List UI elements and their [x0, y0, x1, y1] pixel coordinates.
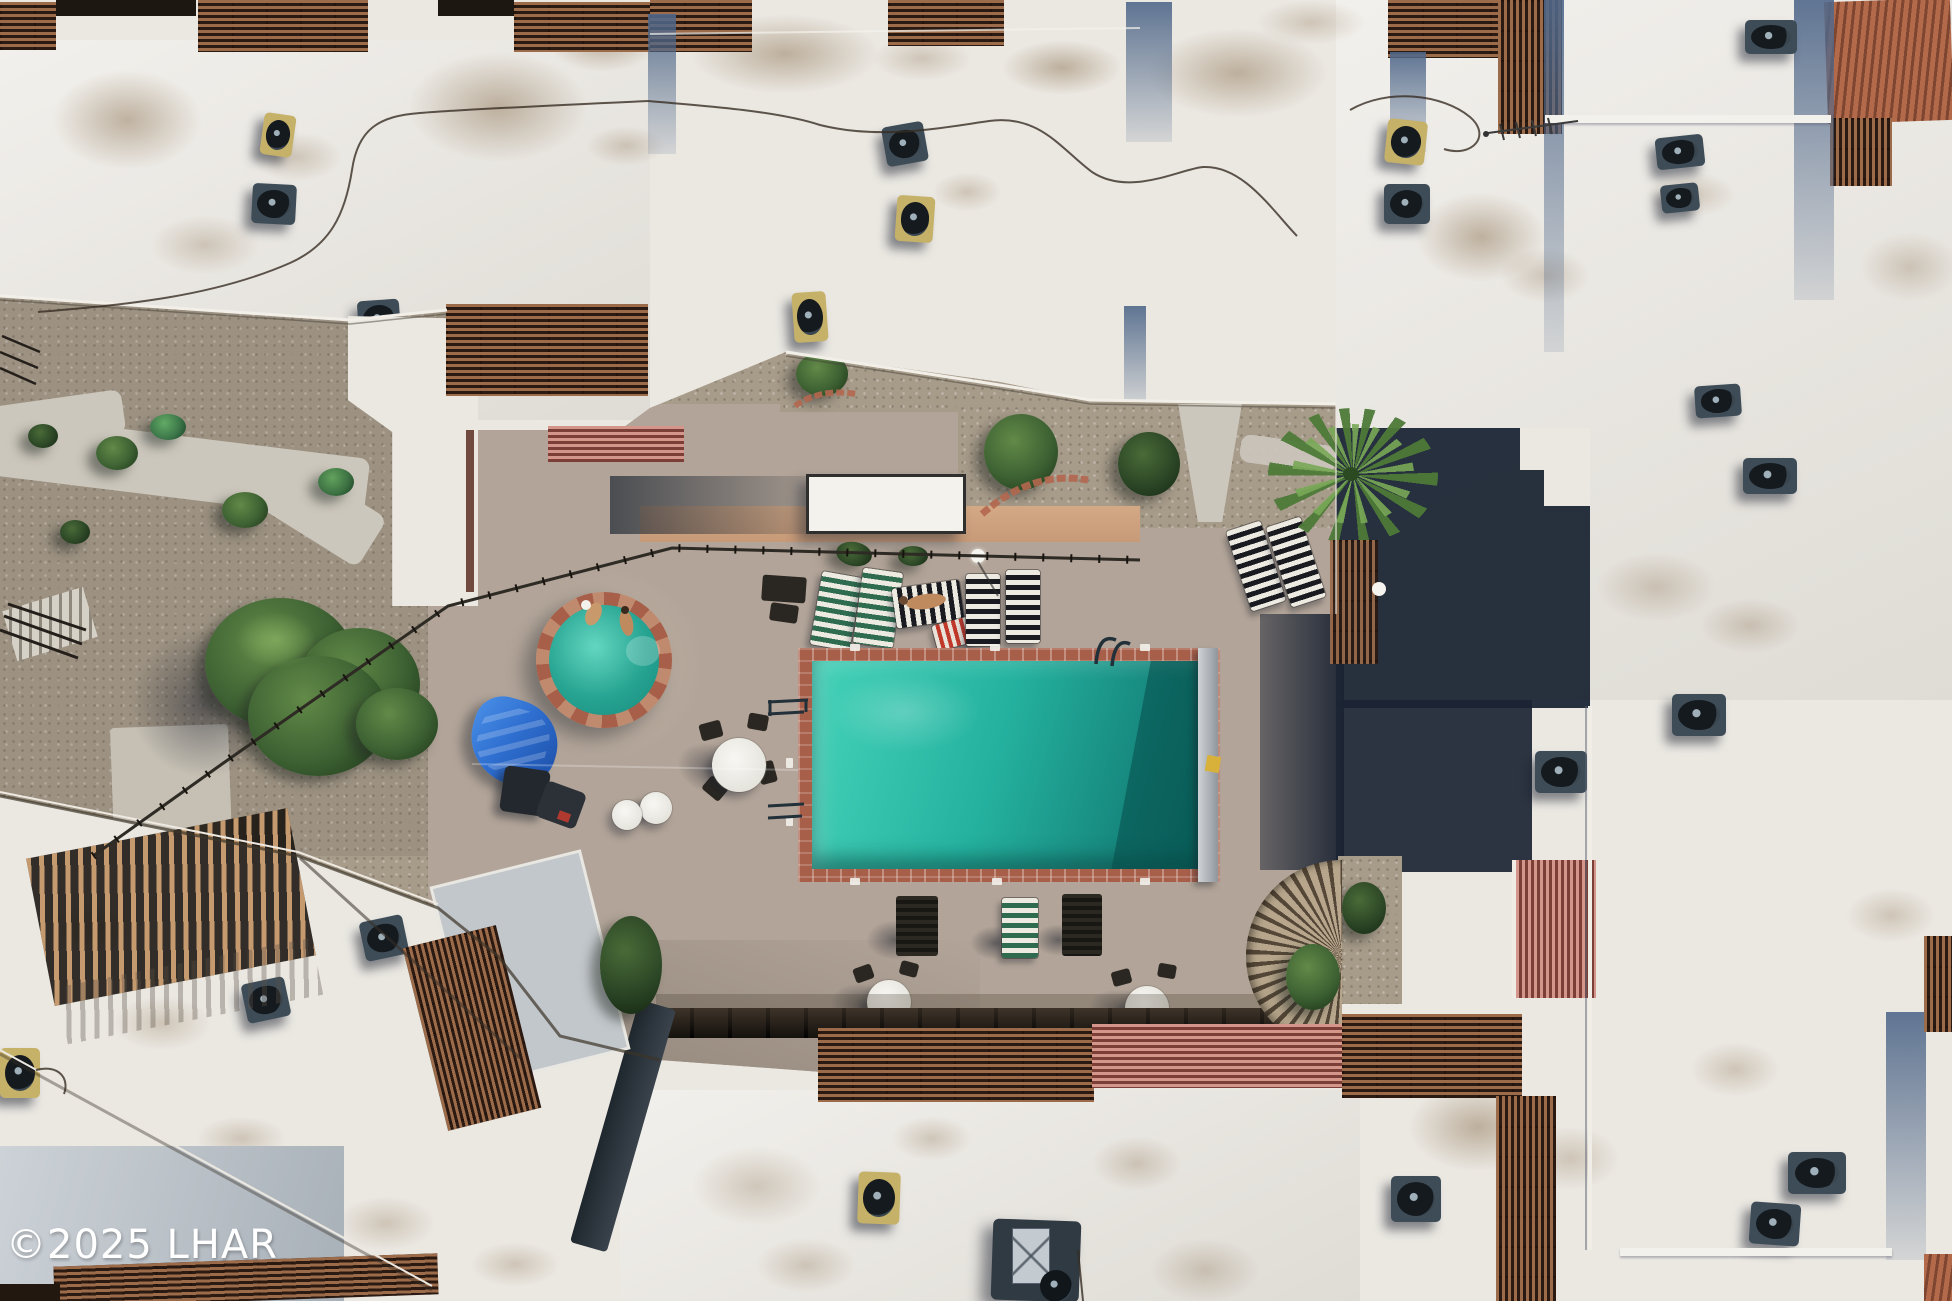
ac-unit	[791, 291, 828, 343]
pergola	[1092, 1024, 1354, 1088]
deck-marker	[850, 878, 860, 885]
lattice-pergola	[1830, 118, 1892, 186]
bush	[96, 436, 138, 470]
patio-chair	[1157, 963, 1177, 980]
pergola	[1388, 0, 1502, 58]
ac-unit	[881, 121, 929, 168]
roof-gap-shadow	[56, 0, 196, 16]
building-gap-shadow	[648, 14, 676, 154]
bush	[222, 492, 268, 528]
patio-chair	[747, 712, 769, 731]
fan-icon	[1661, 139, 1700, 166]
tree	[356, 688, 438, 760]
pergola	[548, 426, 684, 462]
person-head	[899, 596, 908, 605]
roof-stain	[408, 52, 588, 162]
tile-roof	[1924, 1254, 1952, 1301]
roof-stain	[336, 1196, 436, 1251]
shade-structure	[806, 474, 966, 534]
tree-highlight	[236, 612, 316, 668]
fan-icon	[1795, 1158, 1839, 1188]
bush	[1342, 882, 1386, 934]
roof-stain	[1150, 1238, 1260, 1301]
yellow-tag	[1205, 755, 1222, 773]
roof-stain	[1092, 1136, 1182, 1191]
fan-icon	[257, 189, 292, 220]
sun-hat	[581, 600, 591, 610]
pergola	[1496, 1096, 1556, 1301]
pergola	[818, 1028, 1094, 1102]
building-gap-shadow	[1794, 0, 1834, 300]
umbrella	[640, 792, 672, 824]
fan-icon	[1751, 25, 1791, 50]
roof-stain	[1002, 40, 1122, 95]
pergola	[446, 304, 648, 396]
roof-notch	[1544, 470, 1590, 506]
fan-icon	[1678, 700, 1719, 730]
ac-unit	[1384, 184, 1430, 224]
fan-icon	[1397, 1182, 1435, 1215]
pergola	[198, 0, 368, 52]
building-gap-shadow	[1544, 0, 1564, 352]
bush	[796, 352, 848, 396]
bench	[761, 574, 807, 603]
fan-icon	[796, 298, 824, 336]
roof-edge-band	[466, 430, 474, 592]
aerial-photo: ©2025 LHAR	[0, 0, 1952, 1301]
ac-unit	[1391, 1176, 1441, 1222]
bench	[769, 602, 799, 624]
ac-unit	[358, 914, 409, 962]
patio-table	[712, 738, 766, 792]
pergola	[1512, 860, 1596, 998]
ac-unit	[1660, 182, 1701, 214]
fan-icon	[1541, 757, 1581, 787]
ac-unit	[1535, 751, 1587, 793]
bush	[1286, 944, 1340, 1010]
ac-unit	[1745, 20, 1797, 54]
pergola	[514, 2, 650, 52]
sun-lounger	[1002, 898, 1038, 958]
bush	[1118, 432, 1180, 496]
ac-unit	[1672, 694, 1726, 736]
bush	[318, 468, 354, 496]
sun-lounger	[1006, 570, 1040, 643]
deck-marker	[990, 644, 1000, 651]
spa-steps	[626, 636, 660, 666]
deck-marker	[850, 644, 860, 651]
deck-marker	[1140, 644, 1150, 651]
roof-stain	[1700, 598, 1800, 653]
roof-stain	[692, 1146, 822, 1226]
pergola	[0, 2, 56, 50]
roof-stain	[1256, 0, 1366, 45]
roof-stain	[1690, 1042, 1780, 1097]
ac-unit	[1654, 134, 1705, 171]
pool-glint	[830, 672, 980, 752]
fan-icon	[862, 1179, 895, 1218]
ramada-shadow	[610, 476, 810, 534]
fan-icon	[1749, 463, 1790, 489]
building-gap-shadow	[1124, 306, 1146, 406]
ac-unit	[857, 1171, 901, 1224]
sun-lounger	[896, 896, 938, 956]
ac-unit	[1384, 118, 1428, 166]
lamp-globe	[971, 549, 985, 563]
roof-stain	[1860, 232, 1952, 302]
parapet	[1620, 1248, 1892, 1256]
bush	[60, 520, 90, 544]
bush	[898, 546, 928, 566]
roof-stain	[892, 1116, 972, 1161]
fan-icon	[1700, 388, 1736, 413]
lamp-globe	[1372, 582, 1386, 596]
pergola	[1342, 1014, 1522, 1098]
building-gap-shadow	[1126, 2, 1172, 142]
bush	[984, 414, 1058, 490]
fan-icon	[1040, 1270, 1072, 1301]
bush	[28, 424, 58, 448]
ac-unit	[1749, 1201, 1802, 1246]
deck-marker	[1140, 878, 1150, 885]
deck-marker	[786, 758, 793, 768]
roof-gap-shadow	[438, 0, 514, 16]
roof-gap-shadow	[0, 1284, 60, 1301]
deck-marker	[992, 878, 1002, 885]
ac-unit	[259, 112, 297, 158]
person-head	[621, 606, 629, 614]
lattice-pergola	[1924, 936, 1952, 1032]
tile-roof	[1824, 0, 1952, 124]
parapet	[1545, 115, 1831, 123]
pergola	[888, 0, 1004, 46]
ac-unit	[251, 183, 297, 225]
ac-unit	[894, 195, 935, 244]
roof-stain	[52, 70, 202, 170]
building-gap-shadow	[1886, 1012, 1926, 1260]
roof-stain	[470, 1242, 560, 1287]
fan-icon	[5, 1055, 35, 1091]
fan-icon	[1665, 186, 1696, 209]
watermark: ©2025 LHAR	[6, 1222, 278, 1268]
ac-unit	[1788, 1152, 1846, 1194]
bush	[150, 414, 186, 440]
ac-unit	[1743, 458, 1797, 494]
fan-icon	[1389, 125, 1423, 160]
fan-icon	[1755, 1208, 1795, 1241]
fan-icon	[365, 920, 404, 955]
roof-stain	[1596, 552, 1716, 622]
building-shadow	[1336, 700, 1532, 872]
roof-stain	[150, 215, 260, 275]
fan-icon	[264, 118, 292, 151]
ac-unit	[1694, 383, 1742, 418]
ac-unit	[0, 1048, 40, 1098]
roof-stain	[932, 172, 1002, 212]
fan-icon	[887, 127, 923, 161]
fan-icon	[1390, 190, 1425, 219]
sun-lounger	[966, 574, 1000, 646]
roof-notch	[1520, 428, 1590, 470]
deck-marker	[786, 816, 793, 826]
palm-tree	[1268, 408, 1438, 543]
roof-stain	[1846, 888, 1936, 943]
lattice-pergola	[1330, 540, 1378, 664]
sun-lounger	[1062, 894, 1102, 956]
roof-stain	[756, 1238, 856, 1293]
fan-icon	[899, 201, 930, 236]
umbrella	[612, 800, 642, 830]
bush	[600, 916, 662, 1014]
